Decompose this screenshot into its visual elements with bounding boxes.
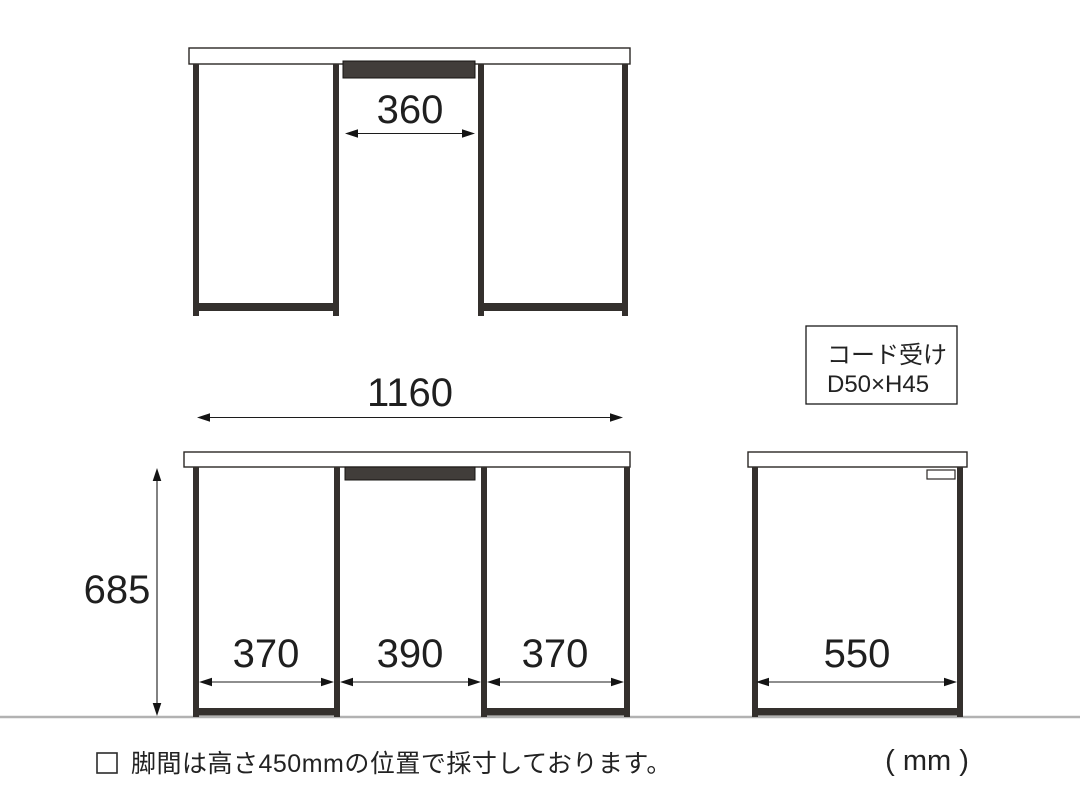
unit-label: ( mm ) <box>885 745 969 777</box>
leg-foot-bar <box>193 708 340 716</box>
leg-bar <box>624 467 630 717</box>
dim-label-right-span: 370 <box>522 632 589 676</box>
leg-bar <box>193 467 199 717</box>
arrow-head-left <box>199 678 212 687</box>
leg-foot-bar <box>752 708 963 716</box>
footnote: 脚間は高さ450mmの位置で採寸しております。 <box>97 750 672 778</box>
desk-dimension-diagram: 360 1160 685 <box>0 0 1080 810</box>
leg-bar <box>622 64 628 316</box>
arrow-head-left <box>197 413 210 422</box>
leg-bar <box>957 467 963 717</box>
front-view: 1160 685 370 390 <box>84 371 630 717</box>
arrow-head-left <box>487 678 500 687</box>
dim-label-center-span: 390 <box>377 632 444 676</box>
dim-arrow-left-span <box>199 678 334 687</box>
leg-bar <box>481 467 487 717</box>
tabletop <box>748 452 967 467</box>
arrow-head-right <box>610 413 623 422</box>
footnote-text: 脚間は高さ450mmの位置で採寸しております。 <box>131 750 672 778</box>
left-leg-panel <box>193 467 340 717</box>
arrow-head-right <box>462 129 475 138</box>
leg-foot-bar <box>478 303 628 311</box>
right-leg-panel <box>478 64 628 316</box>
side-leg-panel <box>752 467 963 717</box>
cord-tray <box>343 61 475 78</box>
arrow-head-right <box>944 678 957 687</box>
leg-bar <box>193 64 199 316</box>
cord-tray <box>345 467 475 480</box>
leg-bar <box>752 467 758 717</box>
dim-arrow-depth <box>756 678 957 687</box>
right-leg-panel <box>481 467 630 717</box>
dim-label-total-width: 1160 <box>367 371 453 415</box>
callout-line1: コード受け <box>827 342 947 369</box>
dim-arrow-right-span <box>487 678 624 687</box>
arrow-head-top <box>153 468 162 481</box>
arrow-head-left <box>345 129 358 138</box>
leg-foot-bar <box>481 708 630 716</box>
side-view: コード受け D50×H45 550 <box>748 326 967 717</box>
dim-label-depth: 550 <box>824 632 891 676</box>
left-leg-panel <box>193 64 339 316</box>
dim-arrow-height <box>153 468 162 716</box>
dim-label-height: 685 <box>84 568 151 612</box>
tabletop <box>184 452 630 467</box>
cord-tray-side-profile <box>927 470 955 479</box>
arrow-head-right <box>321 678 334 687</box>
square-bullet-icon <box>97 753 117 773</box>
dim-arrow-center-span <box>340 678 481 687</box>
dim-label-left-span: 370 <box>233 632 300 676</box>
arrow-head-bottom <box>153 703 162 716</box>
arrow-head-left <box>340 678 353 687</box>
arrow-head-right <box>468 678 481 687</box>
arrow-head-right <box>611 678 624 687</box>
callout-line2: D50×H45 <box>827 371 929 398</box>
diagram-canvas: 360 1160 685 <box>0 0 1080 810</box>
leg-bar <box>478 64 484 316</box>
leg-foot-bar <box>193 303 339 311</box>
dim-label-cord-width: 360 <box>377 88 444 132</box>
cord-tray-callout: コード受け D50×H45 <box>806 326 957 404</box>
leg-bar <box>333 64 339 316</box>
leg-bar <box>334 467 340 717</box>
back-view: 360 <box>189 48 630 316</box>
